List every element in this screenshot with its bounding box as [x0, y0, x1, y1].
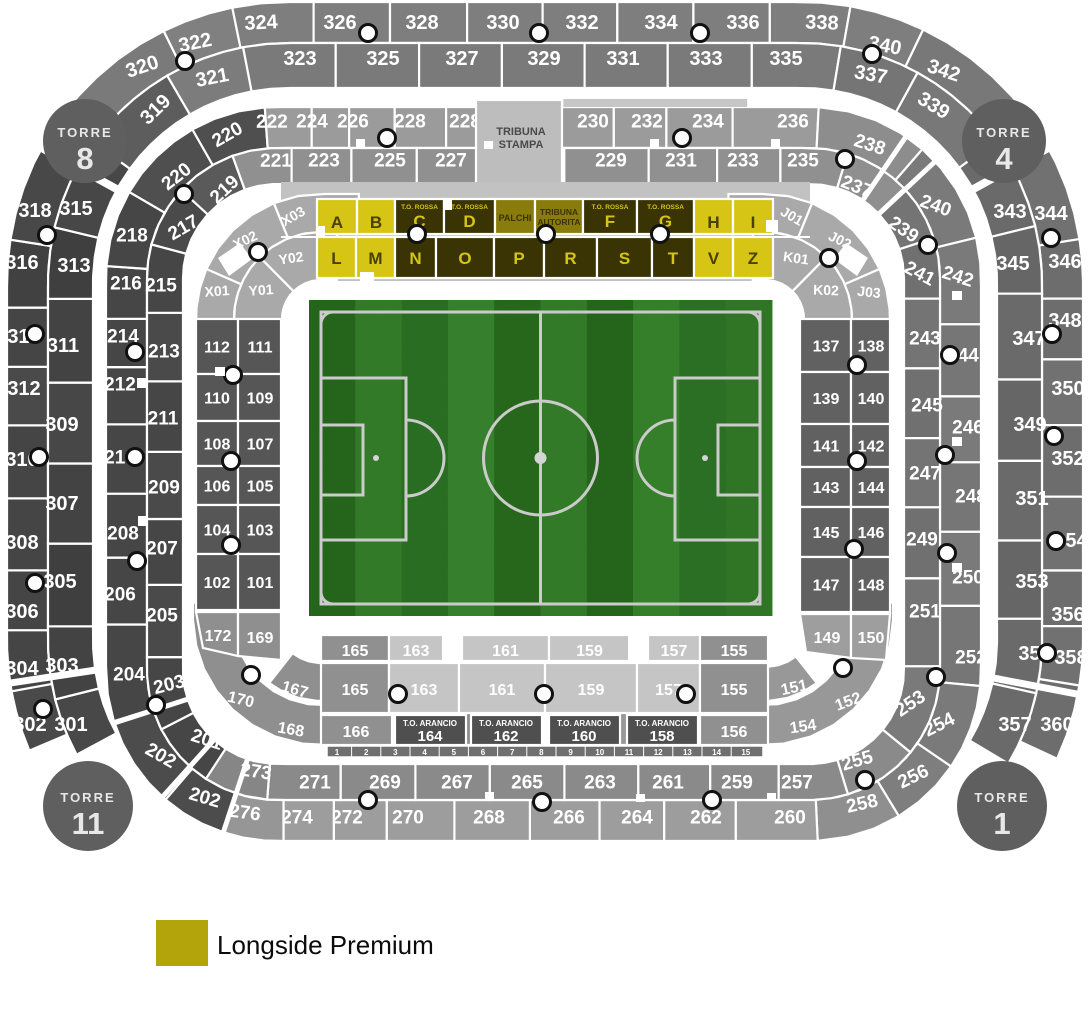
- svg-text:TORRE: TORRE: [976, 125, 1031, 140]
- svg-text:T.O. ARANCIO: T.O. ARANCIO: [479, 719, 533, 728]
- svg-text:301: 301: [54, 714, 87, 736]
- svg-text:1: 1: [993, 806, 1010, 841]
- svg-text:T.O. ROSSA: T.O. ROSSA: [592, 204, 629, 211]
- svg-text:307: 307: [45, 493, 78, 515]
- svg-text:216: 216: [110, 274, 142, 295]
- svg-text:140: 140: [858, 391, 885, 408]
- svg-text:137: 137: [813, 339, 840, 356]
- svg-text:159: 159: [576, 643, 603, 660]
- svg-text:T.O. ARANCIO: T.O. ARANCIO: [635, 719, 689, 728]
- svg-text:D: D: [463, 212, 475, 231]
- svg-text:T: T: [668, 249, 679, 268]
- svg-text:T.O. ROSSA: T.O. ROSSA: [647, 204, 684, 211]
- svg-text:249: 249: [906, 530, 938, 551]
- svg-text:328: 328: [405, 12, 438, 34]
- svg-text:233: 233: [727, 151, 759, 172]
- svg-text:360: 360: [1040, 714, 1073, 736]
- svg-text:207: 207: [146, 539, 178, 560]
- svg-text:327: 327: [445, 48, 478, 70]
- svg-text:12: 12: [654, 748, 663, 757]
- svg-text:141: 141: [813, 439, 840, 456]
- svg-text:257: 257: [781, 773, 813, 794]
- svg-text:3: 3: [393, 748, 398, 757]
- svg-text:218: 218: [116, 226, 148, 247]
- svg-text:165: 165: [342, 682, 369, 699]
- svg-text:338: 338: [805, 11, 839, 34]
- svg-text:V: V: [708, 249, 720, 268]
- svg-text:TORRE: TORRE: [974, 790, 1029, 805]
- svg-text:103: 103: [247, 523, 274, 540]
- svg-text:X01: X01: [204, 282, 230, 300]
- svg-text:251: 251: [909, 602, 941, 623]
- svg-text:357: 357: [998, 714, 1031, 736]
- svg-text:4: 4: [995, 141, 1013, 176]
- svg-text:268: 268: [473, 808, 505, 829]
- svg-text:261: 261: [652, 773, 684, 794]
- svg-text:TORRE: TORRE: [60, 790, 115, 805]
- svg-text:226: 226: [337, 112, 369, 133]
- svg-text:B: B: [370, 213, 382, 232]
- svg-text:212: 212: [104, 375, 136, 396]
- svg-text:158: 158: [649, 728, 674, 745]
- svg-text:TRIBUNA: TRIBUNA: [540, 207, 578, 217]
- svg-text:353: 353: [1015, 571, 1048, 593]
- svg-text:148: 148: [858, 578, 885, 595]
- svg-text:346: 346: [1048, 251, 1081, 273]
- svg-text:349: 349: [1013, 414, 1046, 436]
- svg-text:263: 263: [584, 773, 616, 794]
- svg-text:344: 344: [1034, 203, 1068, 225]
- svg-text:274: 274: [281, 808, 313, 829]
- svg-text:343: 343: [993, 201, 1026, 223]
- svg-text:247: 247: [909, 464, 941, 485]
- svg-text:8: 8: [76, 141, 93, 176]
- svg-text:223: 223: [308, 151, 340, 172]
- svg-text:106: 106: [204, 479, 231, 496]
- svg-text:309: 309: [45, 414, 78, 436]
- svg-text:234: 234: [692, 112, 724, 133]
- svg-text:260: 260: [774, 808, 806, 829]
- svg-text:331: 331: [606, 48, 639, 70]
- svg-text:T.O. ARANCIO: T.O. ARANCIO: [403, 719, 457, 728]
- svg-text:164: 164: [417, 728, 443, 745]
- svg-text:345: 345: [996, 253, 1029, 275]
- svg-text:266: 266: [553, 808, 585, 829]
- svg-text:Longside Premium: Longside Premium: [217, 930, 434, 960]
- svg-text:311: 311: [47, 335, 79, 357]
- svg-text:308: 308: [5, 532, 38, 554]
- svg-text:235: 235: [787, 151, 819, 172]
- svg-text:A: A: [331, 213, 343, 232]
- svg-text:1: 1: [335, 748, 340, 757]
- svg-text:324: 324: [244, 11, 279, 35]
- svg-text:111: 111: [248, 340, 273, 357]
- svg-text:101: 101: [247, 575, 274, 592]
- svg-text:312: 312: [7, 378, 40, 400]
- svg-text:147: 147: [813, 578, 840, 595]
- svg-text:H: H: [707, 213, 719, 232]
- svg-text:326: 326: [323, 12, 356, 34]
- svg-text:156: 156: [721, 724, 748, 741]
- svg-text:272: 272: [331, 808, 363, 829]
- svg-text:161: 161: [489, 682, 516, 699]
- svg-text:2: 2: [364, 748, 369, 757]
- svg-text:160: 160: [571, 728, 596, 745]
- svg-text:TRIBUNA: TRIBUNA: [496, 126, 546, 138]
- svg-text:11: 11: [625, 748, 634, 757]
- svg-text:271: 271: [299, 773, 331, 794]
- svg-text:STAMPA: STAMPA: [499, 139, 544, 151]
- svg-text:172: 172: [205, 628, 232, 645]
- svg-text:155: 155: [721, 643, 748, 660]
- svg-text:139: 139: [813, 391, 840, 408]
- svg-text:169: 169: [247, 630, 274, 647]
- svg-text:347: 347: [1012, 328, 1045, 350]
- svg-text:Z: Z: [748, 249, 758, 268]
- svg-text:163: 163: [403, 643, 430, 660]
- svg-text:109: 109: [247, 391, 274, 408]
- svg-text:267: 267: [441, 773, 473, 794]
- svg-text:159: 159: [578, 682, 605, 699]
- svg-text:259: 259: [721, 773, 753, 794]
- svg-text:330: 330: [486, 12, 519, 34]
- svg-text:P: P: [513, 249, 524, 268]
- svg-text:350: 350: [1051, 378, 1084, 400]
- svg-text:112: 112: [204, 340, 230, 357]
- svg-text:145: 145: [813, 525, 840, 542]
- svg-text:358: 358: [1054, 647, 1087, 669]
- svg-text:146: 146: [858, 525, 885, 542]
- svg-text:L: L: [331, 249, 341, 268]
- svg-text:232: 232: [631, 112, 663, 133]
- svg-text:213: 213: [148, 342, 180, 363]
- svg-text:108: 108: [204, 437, 231, 454]
- svg-text:205: 205: [146, 606, 178, 627]
- svg-text:316: 316: [5, 252, 38, 274]
- svg-text:T.O. ROSSA: T.O. ROSSA: [451, 204, 488, 211]
- svg-text:R: R: [564, 249, 576, 268]
- svg-text:161: 161: [492, 643, 519, 660]
- svg-text:150: 150: [858, 630, 885, 647]
- svg-text:336: 336: [726, 12, 759, 34]
- svg-text:PALCHI: PALCHI: [499, 213, 532, 223]
- svg-text:215: 215: [145, 276, 177, 297]
- svg-text:222: 222: [256, 112, 288, 133]
- svg-text:13: 13: [683, 748, 692, 757]
- svg-text:229: 229: [595, 151, 627, 172]
- svg-text:K02: K02: [813, 281, 839, 298]
- svg-text:143: 143: [813, 480, 840, 497]
- svg-text:208: 208: [107, 524, 139, 545]
- svg-text:107: 107: [247, 437, 274, 454]
- svg-text:248: 248: [955, 487, 987, 508]
- svg-text:305: 305: [43, 571, 76, 593]
- svg-text:351: 351: [1015, 488, 1048, 510]
- svg-text:T.O. ROSSA: T.O. ROSSA: [401, 204, 438, 211]
- svg-text:Y01: Y01: [248, 281, 274, 299]
- svg-text:225: 225: [374, 151, 406, 172]
- svg-text:262: 262: [690, 808, 722, 829]
- svg-text:352: 352: [1051, 448, 1084, 470]
- svg-text:333: 333: [689, 48, 722, 70]
- svg-text:O: O: [458, 249, 471, 268]
- svg-text:S: S: [619, 249, 630, 268]
- svg-text:165: 165: [342, 643, 369, 660]
- svg-text:252: 252: [955, 648, 987, 669]
- svg-text:T.O. ARANCIO: T.O. ARANCIO: [557, 719, 611, 728]
- svg-text:105: 105: [247, 479, 274, 496]
- svg-text:M: M: [368, 249, 382, 268]
- svg-text:N: N: [409, 249, 421, 268]
- svg-text:155: 155: [721, 682, 748, 699]
- svg-text:332: 332: [565, 12, 598, 34]
- svg-text:334: 334: [644, 12, 678, 34]
- svg-text:8: 8: [539, 748, 544, 757]
- svg-text:110: 110: [204, 391, 230, 408]
- svg-text:227: 227: [435, 151, 467, 172]
- svg-text:TORRE: TORRE: [57, 125, 112, 140]
- svg-text:243: 243: [909, 329, 941, 350]
- svg-text:329: 329: [527, 48, 560, 70]
- svg-text:236: 236: [777, 112, 809, 133]
- svg-text:I: I: [751, 213, 756, 232]
- svg-text:162: 162: [493, 728, 518, 745]
- svg-text:138: 138: [858, 339, 885, 356]
- svg-text:209: 209: [148, 478, 180, 499]
- svg-text:10: 10: [595, 748, 604, 757]
- svg-text:F: F: [605, 212, 615, 231]
- svg-text:270: 270: [392, 808, 424, 829]
- svg-text:265: 265: [511, 773, 543, 794]
- svg-text:211: 211: [148, 409, 179, 430]
- svg-text:325: 325: [366, 48, 399, 70]
- svg-text:204: 204: [113, 665, 145, 686]
- svg-text:9: 9: [568, 748, 573, 757]
- svg-text:5: 5: [452, 748, 457, 757]
- svg-text:313: 313: [57, 255, 90, 277]
- svg-text:315: 315: [59, 198, 92, 220]
- svg-text:230: 230: [577, 112, 609, 133]
- svg-text:144: 144: [858, 480, 885, 497]
- svg-text:166: 166: [343, 724, 370, 741]
- svg-text:306: 306: [5, 601, 38, 623]
- svg-text:224: 224: [296, 112, 328, 133]
- svg-text:6: 6: [481, 748, 486, 757]
- svg-text:11: 11: [72, 806, 105, 841]
- svg-text:323: 323: [283, 48, 316, 70]
- svg-text:245: 245: [911, 396, 943, 417]
- svg-text:228: 228: [394, 112, 426, 133]
- svg-text:4: 4: [422, 748, 427, 757]
- svg-text:318: 318: [18, 200, 51, 222]
- svg-text:221: 221: [260, 151, 292, 172]
- svg-text:J03: J03: [857, 283, 882, 301]
- svg-text:335: 335: [769, 48, 802, 70]
- svg-text:14: 14: [712, 748, 721, 757]
- svg-text:157: 157: [661, 643, 688, 660]
- svg-text:269: 269: [369, 773, 401, 794]
- svg-text:206: 206: [104, 585, 136, 606]
- svg-text:356: 356: [1051, 604, 1084, 626]
- svg-text:163: 163: [411, 682, 438, 699]
- svg-text:246: 246: [952, 418, 984, 439]
- svg-text:149: 149: [814, 630, 841, 647]
- svg-text:102: 102: [204, 575, 231, 592]
- svg-text:231: 231: [665, 151, 697, 172]
- svg-text:15: 15: [741, 748, 750, 757]
- svg-text:264: 264: [621, 808, 653, 829]
- svg-text:7: 7: [510, 748, 515, 757]
